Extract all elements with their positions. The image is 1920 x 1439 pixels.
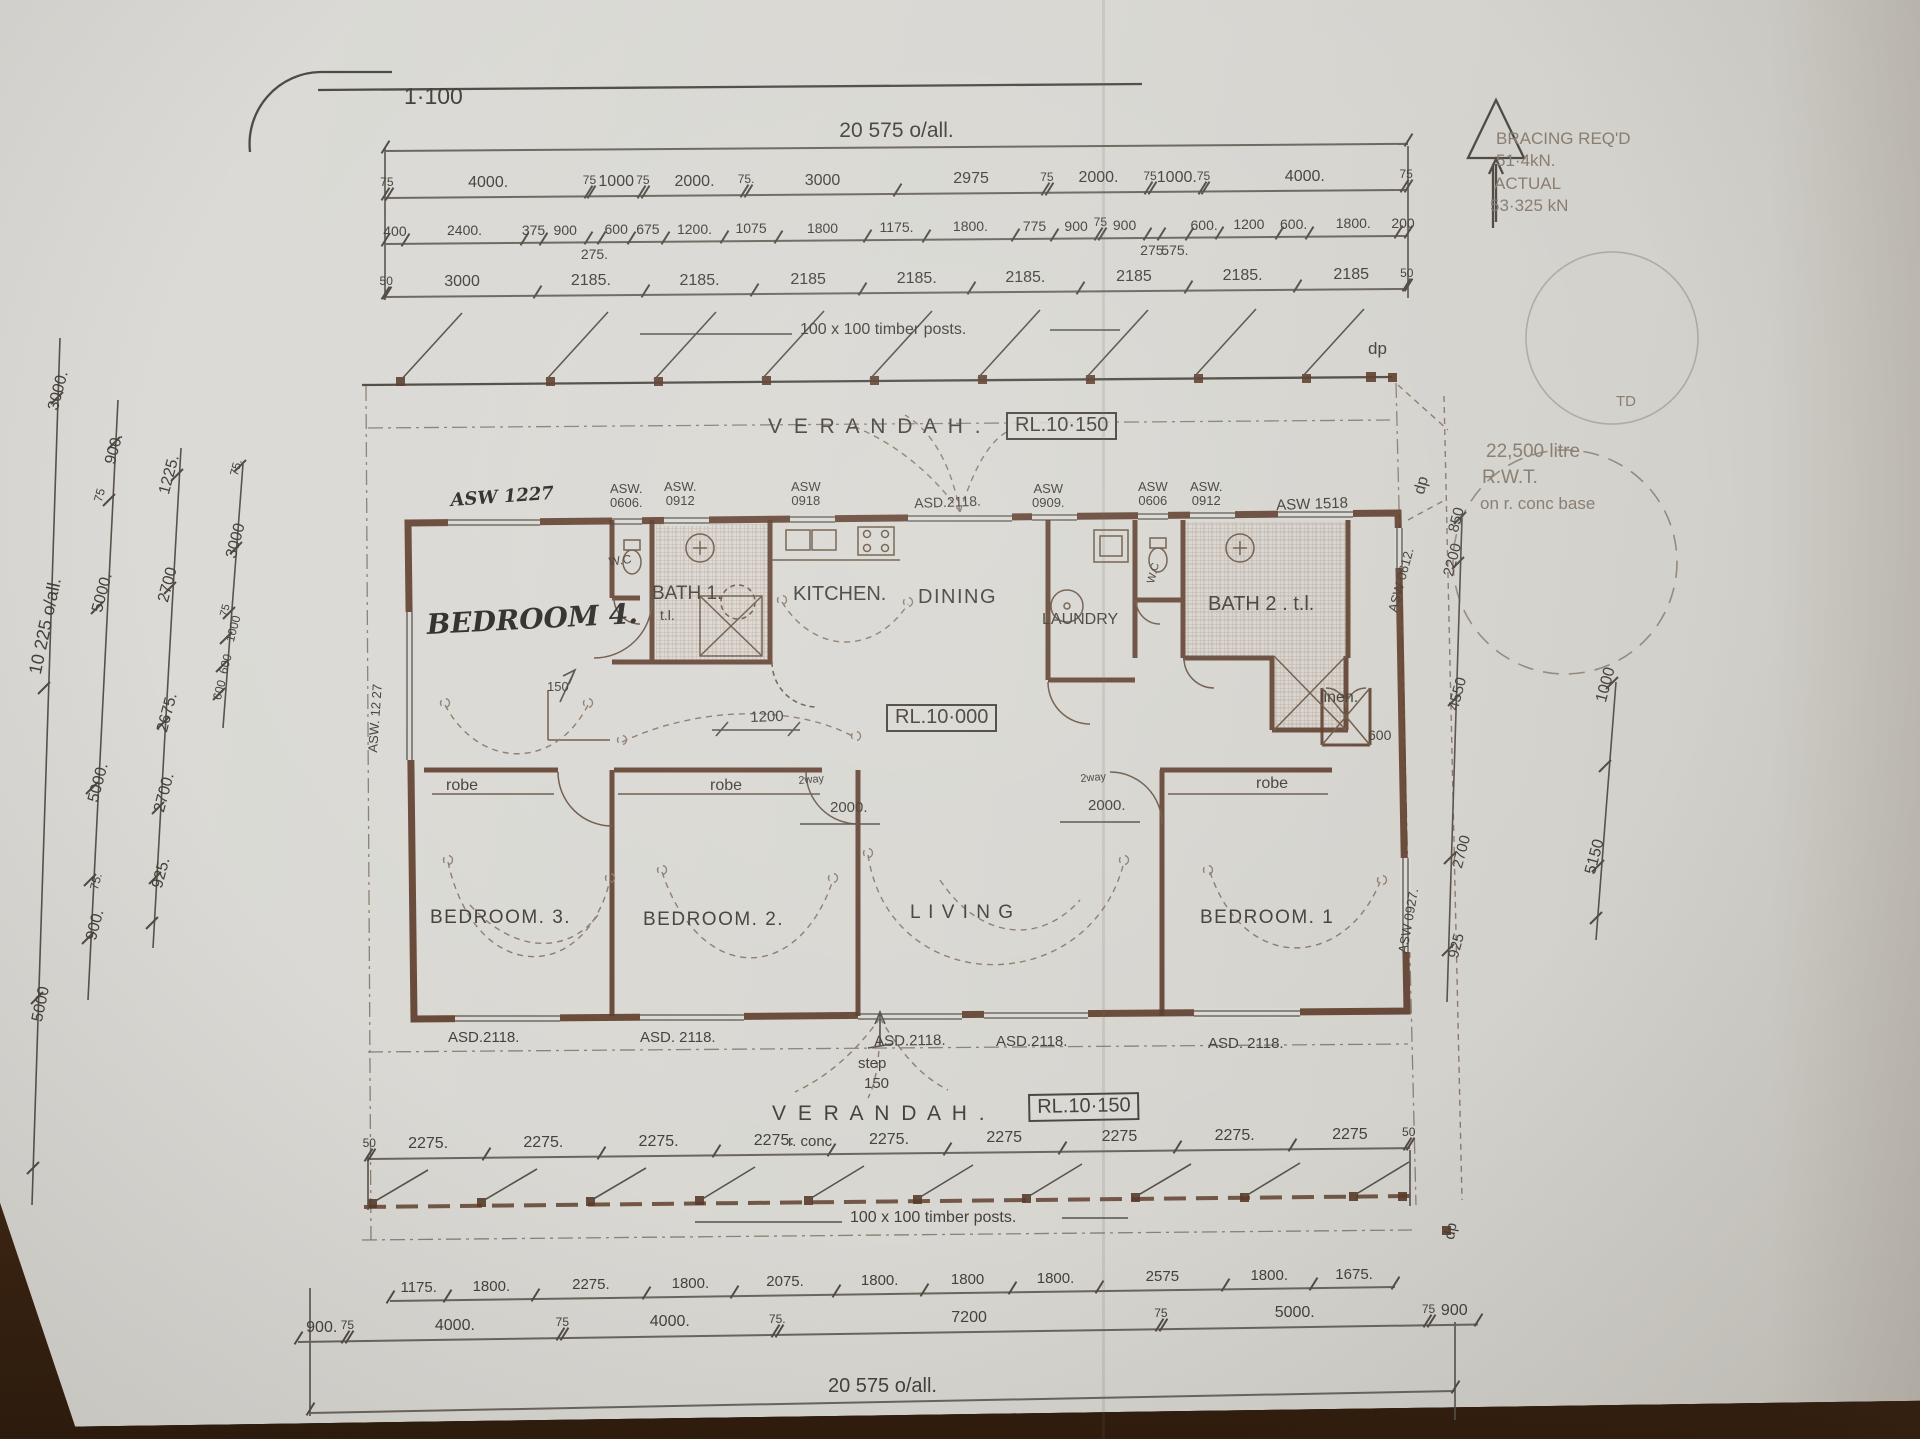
dim-label: 50 bbox=[380, 274, 393, 288]
dim-label: 4000. bbox=[435, 1317, 475, 1335]
dim-bed4-150: 150 bbox=[547, 680, 569, 694]
dim-label: 400 bbox=[383, 223, 406, 239]
dim-label: 375 bbox=[522, 222, 545, 238]
note-td: TD bbox=[1616, 394, 1636, 410]
dim-label: 2975 bbox=[953, 170, 989, 188]
dim-label: 2185. bbox=[1223, 267, 1263, 285]
note-bracing-1: BRACING REQ'D bbox=[1496, 130, 1631, 148]
dim-label: 600. bbox=[1280, 216, 1307, 232]
bath2-tiles bbox=[1185, 522, 1347, 656]
dim-label: 75 bbox=[556, 1315, 569, 1329]
dim-label: 75. bbox=[738, 172, 755, 186]
dim-label: 2275. bbox=[869, 1131, 909, 1149]
room-kitchen: KITCHEN. bbox=[793, 584, 886, 605]
note-tank-1: 22,500 litre bbox=[1486, 442, 1580, 462]
dim-label: 2185. bbox=[1005, 269, 1045, 287]
dim-label: 1800. bbox=[1250, 1267, 1288, 1284]
dim-label: 900 bbox=[1113, 217, 1136, 233]
note-bracing-3: ACTUAL bbox=[1494, 175, 1561, 193]
level-floor: RL.10·000 bbox=[886, 704, 997, 732]
dim-label: 200 bbox=[1391, 215, 1414, 231]
dim-2000-left: 2000. bbox=[830, 800, 868, 816]
dim-label: 900 bbox=[1441, 1302, 1468, 1320]
dim-label: 75 bbox=[1040, 170, 1053, 184]
dim-label: 20 575 o/all. bbox=[828, 1375, 937, 1398]
dim-label: 4000. bbox=[1285, 168, 1325, 186]
dim-label: 2185 bbox=[1333, 266, 1369, 284]
roof-detail-arc bbox=[250, 72, 392, 152]
note-step-150: 150 bbox=[864, 1076, 889, 1092]
room-bath1: BATH 1. bbox=[652, 584, 722, 604]
door-asd2118-b1: ASD.2118. bbox=[448, 1030, 519, 1046]
dim-label: 1800. bbox=[861, 1272, 899, 1289]
dim-label: 600 bbox=[605, 221, 628, 237]
dim-hall-1200: 1200 bbox=[750, 709, 784, 726]
post-diagonals-bottom bbox=[372, 1162, 1409, 1203]
level-verandah-top: RL.10·150 bbox=[1006, 412, 1117, 440]
level-verandah-bottom: RL.10·150 bbox=[1028, 1092, 1140, 1122]
robe-2: robe bbox=[710, 778, 742, 795]
win-asw1518: ASW 1518 bbox=[1276, 495, 1348, 513]
dim-label: 2275 bbox=[1332, 1126, 1368, 1144]
room-bedroom3: BEDROOM. 3. bbox=[430, 908, 571, 928]
note-posts-bottom: 100 x 100 timber posts. bbox=[850, 1210, 1016, 1227]
dim-label: 4000. bbox=[650, 1313, 690, 1331]
room-bath1-tl: t.l. bbox=[660, 608, 675, 623]
dim-label: 5000. bbox=[1275, 1304, 1315, 1322]
dim-label: 75 bbox=[1197, 169, 1210, 183]
dim-label: 1200. bbox=[677, 221, 712, 237]
dim-label: 1800 bbox=[807, 220, 838, 236]
room-bath2: BATH 2 . t.l. bbox=[1208, 594, 1314, 615]
win-asw0606-a: ASW. 0606. bbox=[610, 482, 643, 509]
room-wc1: W.C bbox=[608, 553, 632, 569]
note-tank-2: R.W.T. bbox=[1482, 468, 1538, 488]
dim-label: 900 bbox=[554, 222, 577, 238]
dim-label: 50 bbox=[1402, 1125, 1415, 1139]
door-asd2118-b5: ASD. 2118. bbox=[1208, 1036, 1284, 1052]
dim-label: 2000. bbox=[674, 173, 714, 191]
dim-label: 1175. bbox=[400, 1279, 436, 1296]
scale-note: 1·100 bbox=[404, 84, 463, 108]
dim-label: 2185 bbox=[790, 271, 826, 289]
verandah-edge-left bbox=[366, 386, 371, 1240]
dim-label: 20 575 o/all. bbox=[839, 119, 953, 143]
room-bedroom2: BEDROOM. 2. bbox=[643, 910, 784, 930]
note-posts-top: 100 x 100 timber posts. bbox=[800, 322, 966, 339]
dim-label: 1800. bbox=[473, 1278, 511, 1295]
room-verandah-bottom: V E R A N D A H . bbox=[772, 1103, 988, 1125]
dim-label: 675 bbox=[636, 221, 659, 237]
post-diagonals-top bbox=[400, 309, 1364, 381]
win-asw0912-b: ASW. 0912 bbox=[1190, 480, 1223, 507]
dim-label: 1000. bbox=[1157, 169, 1197, 187]
note-2way-left: 2way bbox=[798, 774, 825, 788]
dim-label: 2185. bbox=[571, 272, 611, 290]
dim-label: 1800. bbox=[953, 218, 988, 234]
dim-label: 2275. bbox=[639, 1133, 679, 1151]
robe-3: robe bbox=[1256, 776, 1288, 793]
note-bracing-2: 51·4kN. bbox=[1496, 152, 1556, 170]
dim-label: 1675. bbox=[1335, 1266, 1373, 1283]
dim-label: 1075 bbox=[735, 220, 766, 236]
dim-label: 50 bbox=[363, 1136, 376, 1150]
win-asw0912-a: ASW. 0912 bbox=[664, 480, 697, 507]
verandah-post-beam-bottom bbox=[364, 1196, 1412, 1207]
room-bedroom1: BEDROOM. 1 bbox=[1200, 908, 1334, 928]
dim-label: 2185 bbox=[1116, 268, 1152, 286]
top-right-circle bbox=[1526, 252, 1698, 424]
dim-label: 75 bbox=[341, 1318, 354, 1332]
dim-label: 2275. bbox=[754, 1132, 794, 1150]
note-step: step bbox=[858, 1056, 886, 1072]
dim-label: 275. bbox=[581, 246, 608, 262]
dim-label: 75 bbox=[1399, 167, 1412, 181]
dim-label: 1800. bbox=[672, 1275, 710, 1292]
dim-label: 2275. bbox=[523, 1134, 563, 1152]
robe-lines bbox=[432, 690, 1328, 794]
note-dp-bottom: dp bbox=[1442, 1222, 1460, 1241]
dim-label: 75 bbox=[1143, 169, 1156, 183]
dim-label: 1200 bbox=[1233, 216, 1264, 232]
dim-label: 1000 bbox=[598, 173, 634, 191]
room-dining: DINING bbox=[918, 587, 997, 608]
win-asw0918: ASW 0918 bbox=[791, 480, 821, 507]
dim-label: 1800. bbox=[1336, 215, 1371, 231]
downpipe-connector bbox=[1398, 385, 1448, 520]
door-asd2118-b2: ASD. 2118. bbox=[640, 1030, 716, 1046]
dim-label: 2275 bbox=[986, 1129, 1022, 1147]
floor-plan-stage: 1·100V E R A N D A H .RL.10·150BEDROOM 4… bbox=[0, 0, 1920, 1439]
dim-label: 4000. bbox=[468, 174, 508, 192]
note-2way-right: 2way bbox=[1080, 772, 1107, 786]
dim-label: 1800. bbox=[1037, 1270, 1075, 1287]
robe-1: robe bbox=[446, 778, 478, 795]
dim-label: 2275 bbox=[1102, 1128, 1138, 1146]
dim-label: 2185. bbox=[897, 270, 937, 288]
note-dp-top: dp bbox=[1368, 340, 1387, 358]
note-tank-3: on r. conc base bbox=[1480, 495, 1595, 513]
dim-label: 75. bbox=[769, 1312, 786, 1326]
dim-label: 900 bbox=[1064, 218, 1087, 234]
dim-label: 2275. bbox=[572, 1276, 610, 1293]
room-verandah-top: V E R A N D A H . bbox=[768, 416, 984, 438]
dim-label: 1175. bbox=[880, 219, 914, 235]
verandah-lower-edge bbox=[362, 1230, 1412, 1240]
dp-post-top bbox=[1366, 372, 1376, 382]
dim-label: 2075. bbox=[766, 1273, 804, 1290]
room-laundry: LAUNDRY bbox=[1042, 612, 1118, 629]
dim-label: 2275. bbox=[408, 1135, 448, 1153]
dim-2000-right: 2000. bbox=[1088, 798, 1126, 814]
door-asd2118-top: ASD.2118. bbox=[914, 494, 981, 511]
win-asw0909: ASW 0909. bbox=[1032, 482, 1065, 509]
dim-label: 2185. bbox=[679, 272, 719, 290]
right-dim-lines bbox=[1447, 518, 1616, 1002]
door-asd2118-b4: ASD.2118. bbox=[996, 1034, 1067, 1050]
left-dim-lines bbox=[32, 338, 243, 1205]
dim-label: 75 bbox=[1094, 215, 1107, 229]
dim-label: 2275. bbox=[1215, 1127, 1255, 1145]
dim-label: 7200 bbox=[951, 1309, 987, 1327]
win-asw0606-b: ASW 0606 bbox=[1138, 480, 1168, 507]
dim-label: 75 bbox=[636, 173, 649, 187]
dim-label: 2000. bbox=[1078, 169, 1118, 187]
dim-label: 775 bbox=[1023, 218, 1046, 234]
room-linen: linen. bbox=[1320, 690, 1358, 707]
dim-label: 75 bbox=[380, 175, 393, 189]
dim-linen-600: 600 bbox=[1368, 728, 1391, 743]
dim-label: 2575 bbox=[1146, 1268, 1179, 1285]
dim-label: 900. bbox=[306, 1319, 337, 1337]
dim-label: 3000 bbox=[444, 273, 480, 291]
dim-label: 75 bbox=[583, 173, 596, 187]
dim-label: 575. bbox=[1161, 242, 1188, 258]
dim-label: 75 bbox=[1422, 1302, 1435, 1316]
dim-label: 600. bbox=[1191, 217, 1218, 233]
dim-label: 3000 bbox=[805, 172, 841, 190]
dim-label: 75 bbox=[1154, 1306, 1167, 1320]
door-asd2118-b3: ASD.2118. bbox=[874, 1033, 946, 1050]
room-living: L I V I N G bbox=[910, 903, 1015, 923]
note-r-conc: r. conc. bbox=[788, 1134, 836, 1150]
dim-label: 1800 bbox=[951, 1271, 984, 1288]
dim-label: 2400. bbox=[447, 222, 482, 238]
note-bracing-4: 53·325 kN bbox=[1490, 197, 1568, 215]
dim-label: 50 bbox=[1400, 266, 1413, 280]
